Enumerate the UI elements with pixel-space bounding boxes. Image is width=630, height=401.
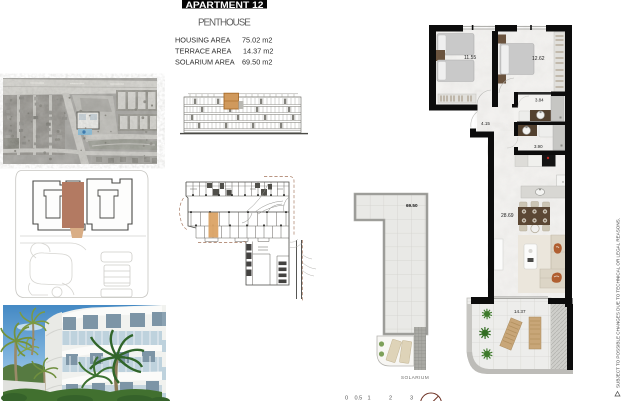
svg-text:3: 3 [410, 396, 413, 401]
svg-text:TERRACE AREA: TERRACE AREA [175, 47, 231, 56]
svg-text:HOUSING AREA: HOUSING AREA [175, 36, 231, 45]
svg-text:3.84: 3.84 [535, 98, 544, 103]
svg-text:SOLARIUM: SOLARIUM [401, 375, 429, 381]
svg-text:3.90: 3.90 [534, 144, 543, 149]
svg-text:1: 1 [368, 396, 371, 401]
svg-text:75.02 m2: 75.02 m2 [242, 36, 272, 45]
svg-text:28.69: 28.69 [501, 213, 514, 219]
svg-text:0.5: 0.5 [355, 396, 363, 401]
svg-text:14.37: 14.37 [514, 309, 526, 314]
svg-text:SOLARIUM AREA: SOLARIUM AREA [175, 58, 235, 67]
svg-text:69.50: 69.50 [406, 203, 418, 208]
svg-text:12.62: 12.62 [532, 56, 545, 62]
svg-text:2: 2 [389, 396, 392, 401]
svg-text:14.37 m2: 14.37 m2 [243, 47, 273, 56]
svg-text:4.15: 4.15 [481, 121, 490, 126]
svg-text:SUBJECT TO POSSIBLE CHANGES DU: SUBJECT TO POSSIBLE CHANGES DUE TO TECHN… [615, 218, 620, 388]
svg-text:PENTHOUSE: PENTHOUSE [198, 18, 251, 29]
svg-text:69.50 m2: 69.50 m2 [242, 58, 272, 67]
svg-text:APARTMENT 12: APARTMENT 12 [186, 0, 264, 10]
svg-text:11.55: 11.55 [464, 55, 476, 61]
svg-text:0: 0 [345, 396, 348, 401]
